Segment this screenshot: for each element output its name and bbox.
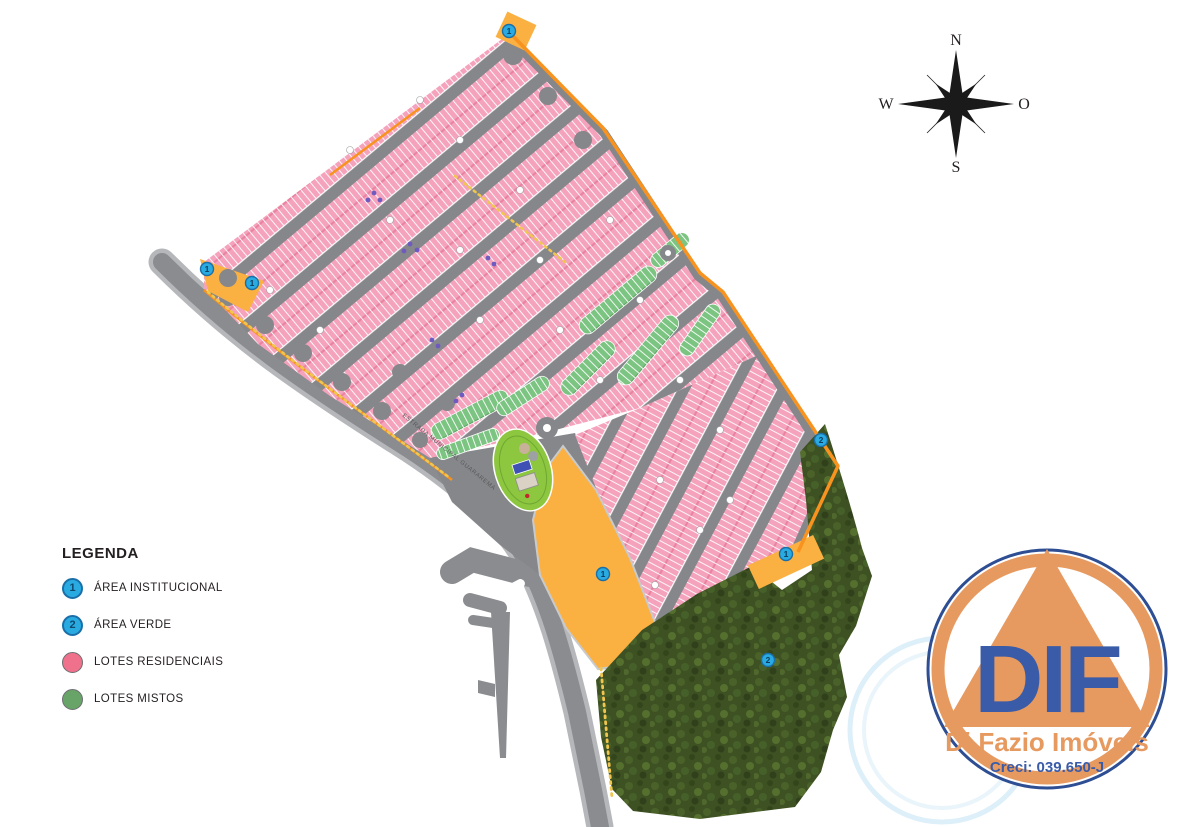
logo-monogram: DIF [974, 626, 1120, 733]
corner-bulb [219, 269, 237, 287]
area-marker[interactable]: 1 [503, 25, 516, 38]
compass-north: N [950, 32, 962, 49]
legend: LEGENDA 1 ÁREA INSTITUCIONAL 2 ÁREA VERD… [62, 545, 223, 710]
svg-text:1: 1 [250, 278, 255, 288]
legend-swatch-residential [62, 652, 83, 673]
svg-text:1: 1 [507, 26, 512, 36]
area-marker[interactable]: 1 [201, 263, 214, 276]
logo-company-name: Di Fazio Imóveis [945, 727, 1149, 757]
compass-west: W [878, 96, 894, 113]
logo-license: Creci: 039.650-J [990, 759, 1104, 776]
svg-text:2: 2 [819, 435, 824, 445]
legend-item-area-verde: 2 ÁREA VERDE [62, 614, 223, 636]
svg-text:1: 1 [784, 549, 789, 559]
legend-label: ÁREA INSTITUCIONAL [94, 582, 223, 594]
legend-item-lotes-residenciais: LOTES RESIDENCIAIS [62, 651, 223, 673]
legend-title: LEGENDA [62, 545, 223, 562]
legend-swatch-mixed [62, 689, 83, 710]
area-marker[interactable]: 1 [246, 277, 259, 290]
site-plan-canvas: ESTRADA MUNICIPAL GUARAREMA 1 1 1 1 1 2 … [0, 0, 1200, 827]
area-marker[interactable]: 2 [815, 434, 828, 447]
compass-east: O [1018, 96, 1030, 113]
compass-rose: N S W O [878, 32, 1029, 176]
company-logo[interactable]: DIF Di Fazio Imóveis Creci: 039.650-J [928, 549, 1166, 788]
svg-text:1: 1 [205, 264, 210, 274]
compass-south: S [952, 159, 961, 176]
legend-label: ÁREA VERDE [94, 619, 172, 631]
legend-label: LOTES MISTOS [94, 693, 184, 705]
area-marker[interactable]: 1 [597, 568, 610, 581]
svg-text:1: 1 [601, 569, 606, 579]
legend-item-lotes-mistos: LOTES MISTOS [62, 688, 223, 710]
area-marker[interactable]: 1 [780, 548, 793, 561]
legend-label: LOTES RESIDENCIAIS [94, 656, 223, 668]
legend-item-area-institucional: 1 ÁREA INSTITUCIONAL [62, 577, 223, 599]
svg-text:2: 2 [766, 655, 771, 665]
legend-symbol-1: 1 [62, 578, 83, 599]
entrance-roads [452, 560, 530, 758]
area-marker[interactable]: 2 [762, 654, 775, 667]
legend-symbol-2: 2 [62, 615, 83, 636]
